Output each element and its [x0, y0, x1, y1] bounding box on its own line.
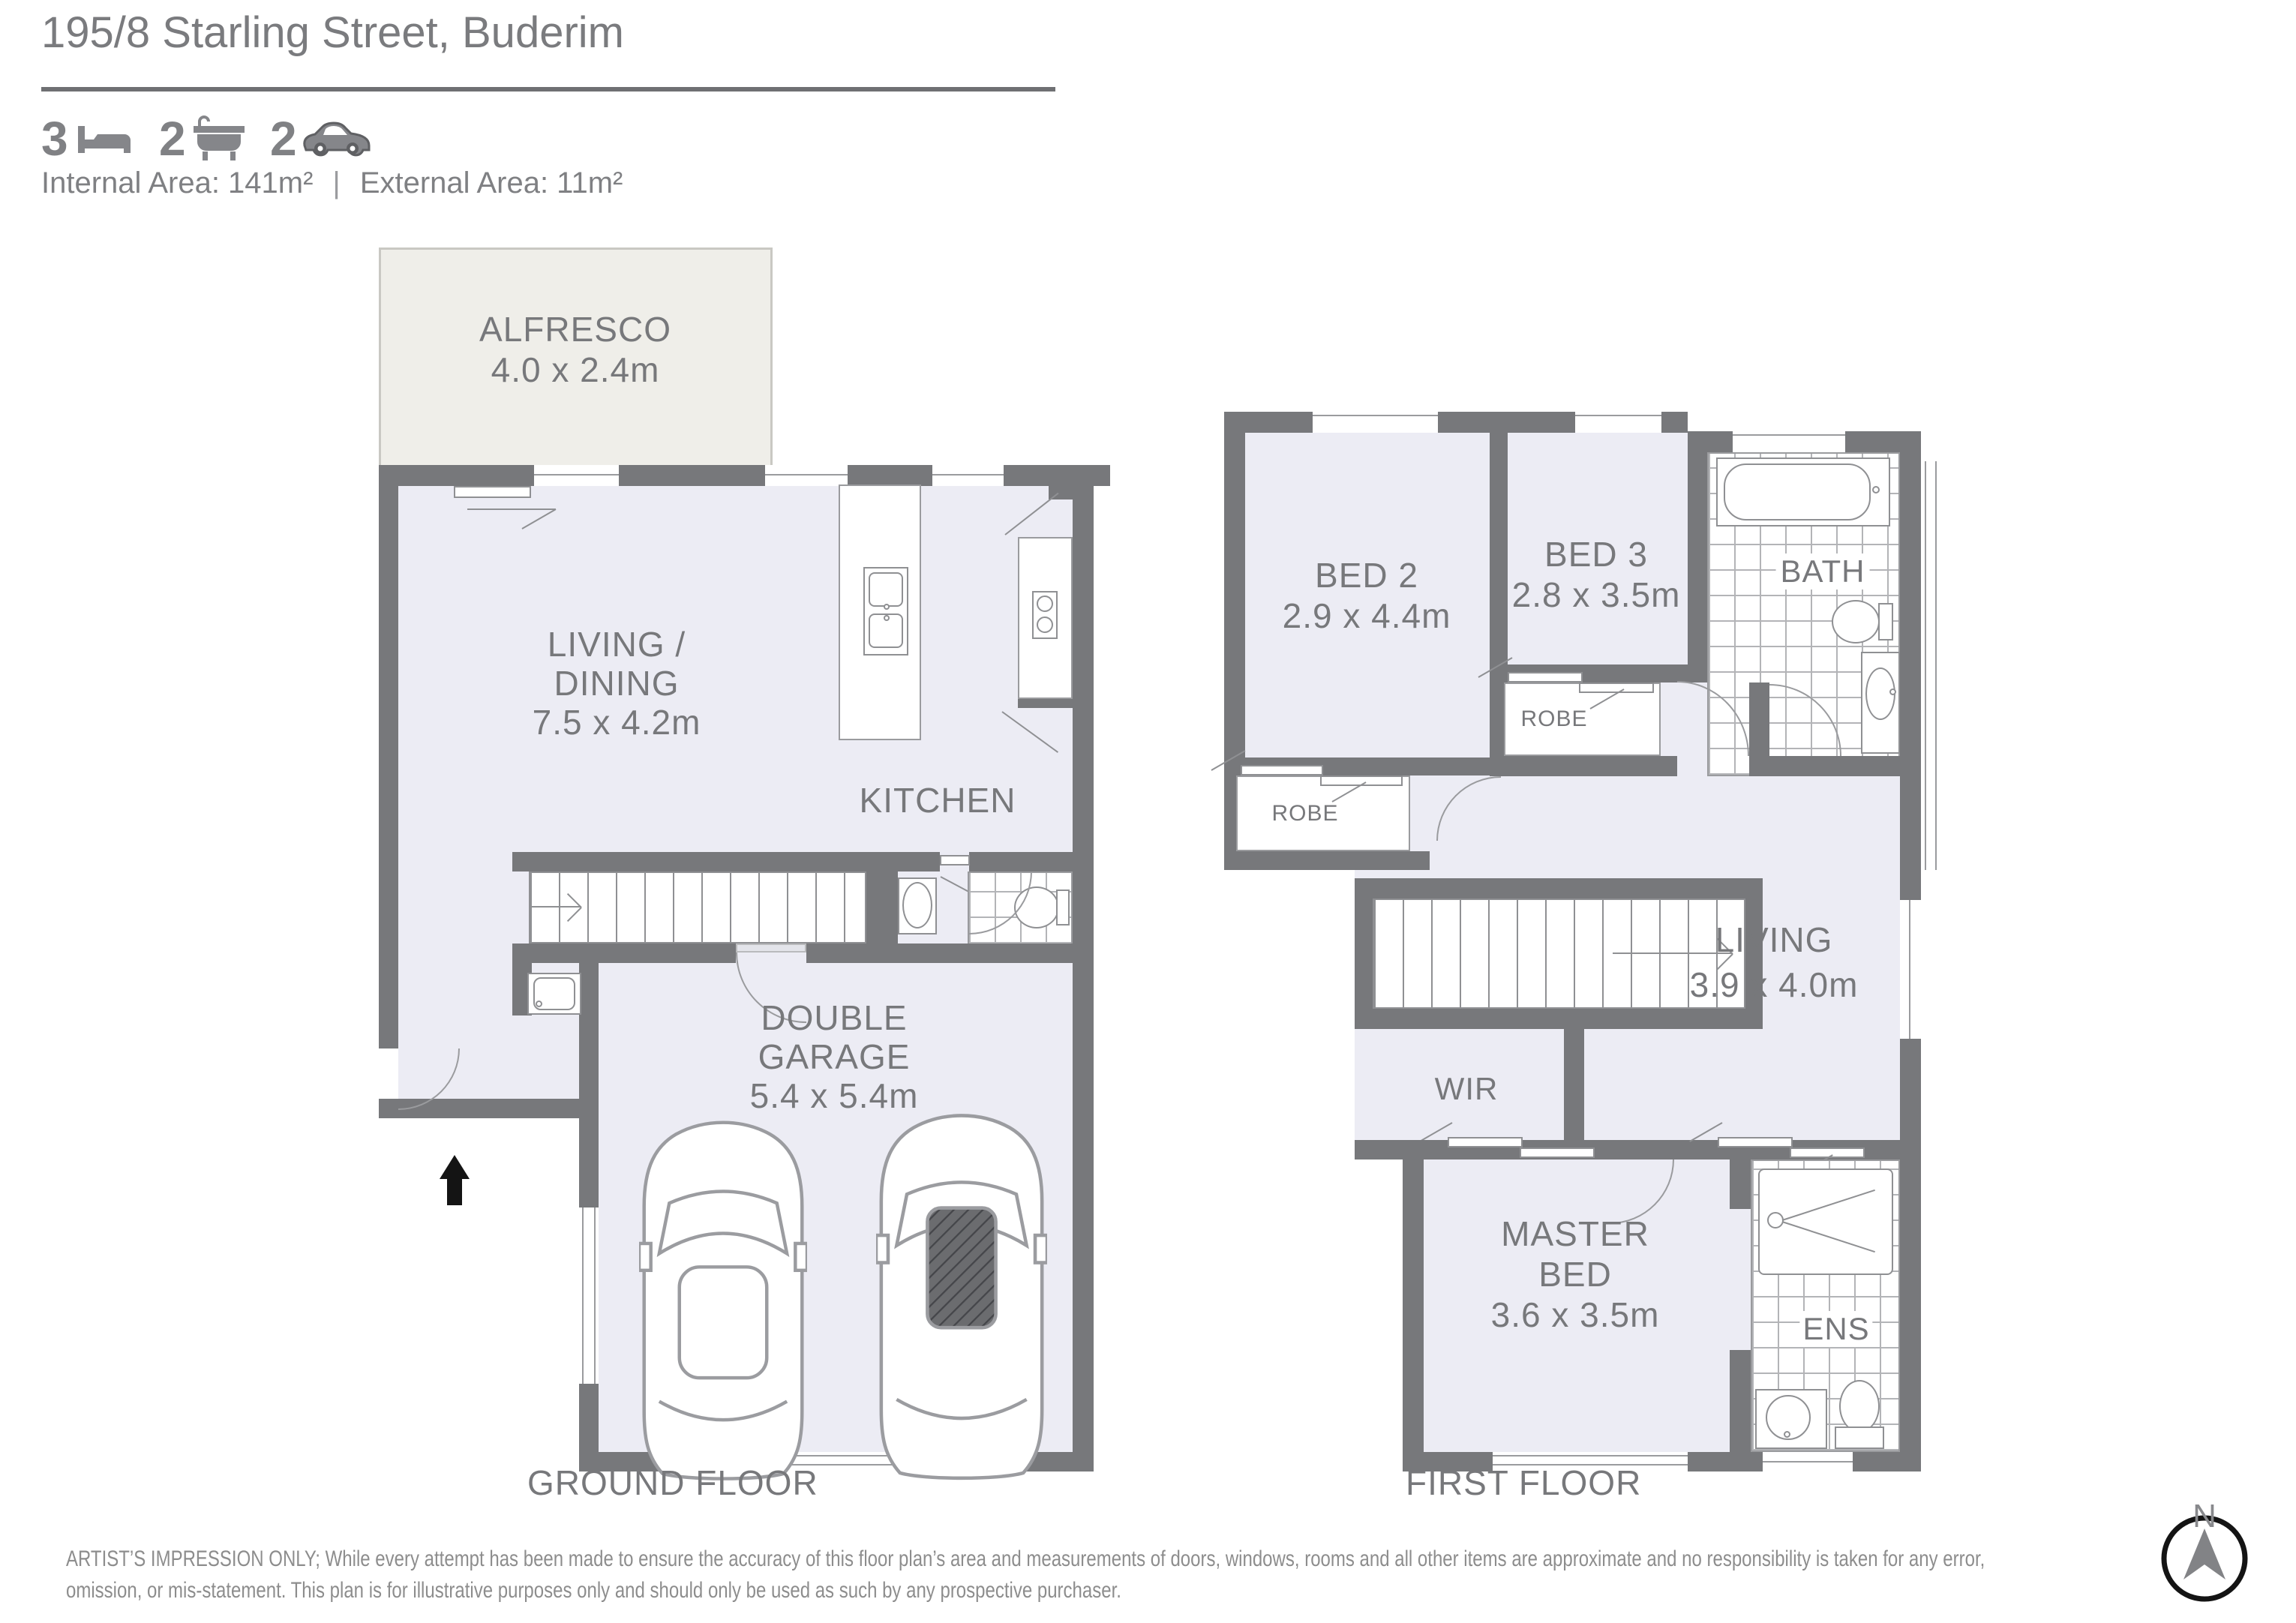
window-line: [932, 474, 1004, 475]
door-direction-tick: [467, 508, 556, 510]
faucet-dot: [884, 615, 890, 621]
disclaimer-line1: ARTIST’S IMPRESSION ONLY; While every at…: [66, 1546, 1985, 1572]
floorplan-page: 195/8 Starling Street, Buderim 3 2 2 Int…: [0, 0, 2296, 1623]
car-top-view: [876, 1111, 1047, 1480]
first-floor-title: FIRST FLOOR: [1406, 1462, 1641, 1503]
hall-basin: [902, 882, 932, 928]
wall: [1355, 878, 1373, 1029]
wir-sliding-panel: [1520, 1147, 1595, 1158]
window: [1900, 900, 1921, 1039]
window-line: [1733, 434, 1845, 436]
area-separator: |: [332, 166, 340, 200]
wall: [1403, 1140, 1424, 1471]
toilet-bowl: [1839, 1380, 1880, 1432]
bed2-dims: 2.9 x 4.4m: [1283, 595, 1451, 636]
wall: [1018, 699, 1073, 708]
wall: [1730, 1159, 1751, 1209]
entry-arrow: [440, 1155, 470, 1179]
door-leaf: [736, 943, 806, 952]
window-line: [765, 474, 848, 475]
bed2-label: BED 2: [1315, 555, 1418, 595]
bathtub-inner: [1724, 463, 1871, 520]
bath-icon: [192, 114, 246, 163]
pocket-door: [940, 855, 970, 865]
faucet-dot: [1784, 1431, 1790, 1438]
ens-label: ENS: [1799, 1311, 1872, 1347]
stair-landing-line: [529, 906, 581, 907]
robe-bed2-label: ROBE: [1271, 801, 1338, 826]
exterior-cutout: [1221, 870, 1355, 1492]
bath-label: BATH: [1776, 553, 1870, 589]
window-line: [1313, 415, 1438, 416]
entry-arrow-stem: [447, 1178, 462, 1205]
bed3-dims: 2.8 x 3.5m: [1512, 574, 1681, 615]
faucet-dot: [536, 1000, 542, 1007]
car-top-view: [639, 1119, 807, 1480]
wall: [1490, 756, 1677, 776]
robe-sliding-panel: [1579, 682, 1654, 693]
master-dims: 3.6 x 3.5m: [1491, 1294, 1660, 1335]
wall: [1355, 1009, 1763, 1029]
toilet-tank: [1835, 1426, 1884, 1449]
title-divider: [41, 87, 1055, 91]
master-label: BED: [1538, 1254, 1612, 1294]
window: [932, 465, 1004, 486]
robe-sliding-panel: [1508, 672, 1583, 682]
alfresco-dims: 4.0 x 2.4m: [491, 349, 660, 390]
window: [765, 465, 848, 486]
window-line: [1575, 415, 1661, 416]
window-line: [1493, 1455, 1688, 1456]
window-line: [534, 474, 619, 475]
wir-sliding-panel: [1448, 1137, 1523, 1147]
wall: [969, 852, 1073, 871]
living-dining-dims: 7.5 x 4.2m: [533, 702, 701, 742]
window-line: [582, 1207, 584, 1384]
car-count: 2: [270, 111, 297, 166]
window-line: [1925, 461, 1926, 870]
window-line: [1763, 1461, 1853, 1462]
page-title: 195/8 Starling Street, Buderim: [41, 7, 624, 58]
disclaimer-line2: omission, or mis-statement. This plan is…: [66, 1578, 1121, 1603]
internal-area: Internal Area: 141m²: [41, 166, 313, 200]
toilet-tank: [1056, 889, 1070, 925]
window-line: [1909, 900, 1910, 1039]
wall: [379, 465, 398, 1048]
wall: [512, 943, 736, 963]
cooktop-burner: [1037, 595, 1053, 612]
ground-floor-title: GROUND FLOOR: [527, 1462, 818, 1503]
wall: [1224, 851, 1430, 870]
living-label: LIVING: [1715, 919, 1833, 960]
wall: [1688, 433, 1707, 682]
kitchen-label: KITCHEN: [860, 780, 1016, 820]
garage-dims: 5.4 x 5.4m: [750, 1075, 919, 1116]
window-line: [1935, 461, 1937, 870]
wall: [1749, 682, 1769, 776]
robe-sliding-panel: [1241, 765, 1323, 775]
bed3-label: BED 3: [1544, 534, 1648, 574]
wir-label: WIR: [1435, 1071, 1499, 1107]
faucet-dot: [1889, 688, 1896, 695]
living-dining-label: DINING: [554, 663, 680, 703]
wall: [806, 943, 1073, 963]
master-label: MASTER: [1501, 1213, 1649, 1254]
living-dims: 3.9 x 4.0m: [1690, 964, 1859, 1005]
north-compass: N: [2157, 1501, 2255, 1606]
exterior-cutout: [1355, 1159, 1403, 1492]
sliding-door-panel: [534, 465, 619, 486]
cooktop-burner: [1037, 616, 1053, 633]
bath-count: 2: [159, 111, 186, 166]
window-line: [594, 1207, 596, 1384]
bath-drain: [1872, 486, 1880, 493]
car-icon: [302, 118, 371, 157]
living-dining-label: LIVING /: [548, 624, 686, 664]
north-label: N: [2192, 1501, 2216, 1534]
wall: [1355, 878, 1763, 898]
robe-bed3-label: ROBE: [1520, 706, 1587, 732]
exterior-cutout: [375, 1118, 579, 1474]
wall: [1769, 756, 1921, 776]
toilet-tank: [1878, 603, 1893, 640]
bed-count: 3: [41, 111, 68, 166]
alfresco-label: ALFRESCO: [479, 309, 671, 349]
garage-label: DOUBLE: [761, 997, 907, 1038]
external-area: External Area: 11m²: [360, 166, 623, 200]
robe-sliding-panel: [1718, 1137, 1793, 1147]
sink-bowl: [869, 572, 903, 607]
bed-icon: [75, 124, 131, 162]
garage-label: GARAGE: [758, 1036, 911, 1077]
entry-door-gap: [379, 1048, 398, 1099]
faucet-dot: [884, 604, 890, 610]
sliding-door-panel: [454, 486, 531, 498]
area-summary: Internal Area: 141m² | External Area: 11…: [41, 166, 623, 200]
wall: [1073, 465, 1094, 1471]
shower-head: [1767, 1212, 1784, 1228]
wall: [1730, 1350, 1751, 1452]
toilet-bowl: [1832, 600, 1880, 643]
